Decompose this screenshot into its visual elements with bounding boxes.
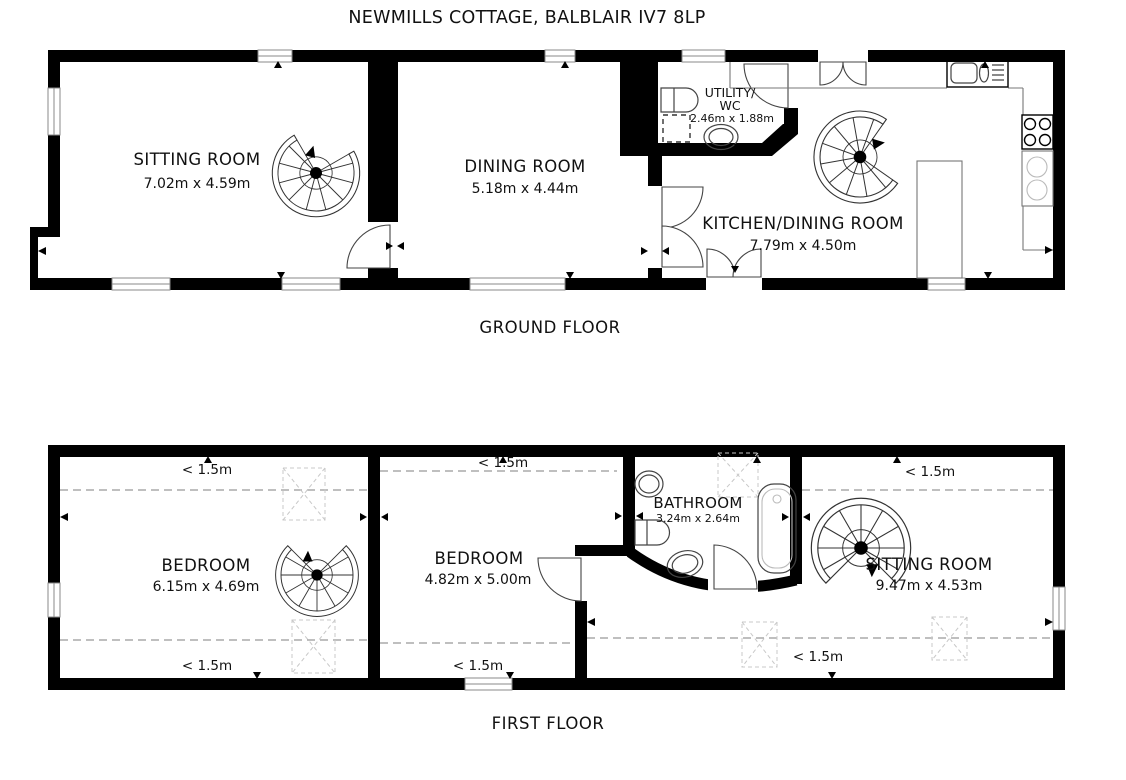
- utility-toilet: [704, 125, 738, 150]
- height-label: < 1.5m: [478, 455, 528, 471]
- first-floor-plan: < 1.5m < 1.5m < 1.5m < 1.5m < 1.5m < 1.5…: [48, 445, 1065, 733]
- window: [470, 278, 565, 290]
- window: [282, 278, 340, 290]
- spiral-staircase-ground-kitchen: [807, 106, 900, 210]
- window: [545, 50, 575, 62]
- kitchen-hob: [1022, 115, 1053, 149]
- bedroom2-dims: 4.82m x 5.00m: [425, 572, 532, 588]
- door-kitchen-bottom-left: [707, 249, 735, 277]
- height-label: < 1.5m: [182, 462, 232, 478]
- bathroom-dims: 3.24m x 2.64m: [656, 512, 740, 525]
- kitchen-sink: [947, 59, 1008, 87]
- kitchen-dining-room-name: KITCHEN/DINING ROOM: [702, 214, 903, 233]
- ground-floor-label: GROUND FLOOR: [479, 318, 620, 337]
- floorplan-canvas: NEWMILLS COTTAGE, BALBLAIR IV7 8LP: [0, 0, 1126, 780]
- skylight: [742, 622, 777, 667]
- door-kitchen-top-left: [820, 62, 843, 85]
- skylight: [292, 620, 335, 673]
- bathroom-name: BATHROOM: [653, 494, 742, 512]
- first-floor-label: FIRST FLOOR: [492, 714, 605, 733]
- dining-room-dims: 5.18m x 4.44m: [472, 181, 579, 197]
- window: [258, 50, 292, 62]
- door-kitchen-top-right: [843, 62, 866, 85]
- ground-sitting-room-dims: 7.02m x 4.59m: [144, 176, 251, 192]
- door-dining-kitchen-lower: [662, 226, 703, 267]
- page-title: NEWMILLS COTTAGE, BALBLAIR IV7 8LP: [348, 8, 705, 28]
- window: [682, 50, 725, 62]
- window: [48, 88, 60, 135]
- spiral-staircase-bedroom1: [276, 546, 359, 617]
- door-bedroom2: [538, 558, 581, 601]
- ground-door-gaps: [366, 49, 868, 291]
- kitchen-dining-room-dims: 7.79m x 4.50m: [750, 238, 857, 254]
- first-sitting-room-dims: 9.47m x 4.53m: [876, 578, 983, 594]
- skylight: [932, 617, 967, 660]
- window: [1053, 587, 1065, 630]
- skylight: [718, 453, 758, 497]
- door-sitting-dining: [347, 225, 390, 268]
- door-dining-kitchen-upper: [662, 187, 703, 228]
- dining-room-name: DINING ROOM: [464, 157, 585, 176]
- bedroom1-dims: 6.15m x 4.69m: [153, 579, 260, 595]
- height-label: < 1.5m: [905, 464, 955, 480]
- skylight: [283, 468, 325, 520]
- bedroom2-name: BEDROOM: [435, 549, 524, 568]
- height-label: < 1.5m: [793, 649, 843, 665]
- window: [48, 583, 60, 617]
- first-sitting-room-name: SITTING ROOM: [866, 555, 993, 574]
- kitchen-island: [917, 161, 962, 278]
- window: [112, 278, 170, 290]
- height-label: < 1.5m: [182, 658, 232, 674]
- height-label: < 1.5m: [453, 658, 503, 674]
- bedroom1-name: BEDROOM: [162, 556, 251, 575]
- window: [928, 278, 965, 290]
- ground-sitting-room-name: SITTING ROOM: [134, 150, 261, 169]
- boiler-dashed-box: [663, 115, 690, 142]
- utility-wc-name-line2: WC: [719, 98, 740, 113]
- ground-floor-plan: SITTING ROOM 7.02m x 4.59m DINING ROOM 5…: [30, 49, 1065, 337]
- utility-wc-dims: 2.46m x 1.88m: [690, 112, 774, 125]
- spiral-staircase-ground-sitting: [262, 132, 366, 227]
- kitchen-appliance-unit: [1022, 151, 1053, 206]
- door-bathroom: [714, 545, 757, 589]
- window: [465, 678, 512, 690]
- utility-sink: [661, 88, 698, 112]
